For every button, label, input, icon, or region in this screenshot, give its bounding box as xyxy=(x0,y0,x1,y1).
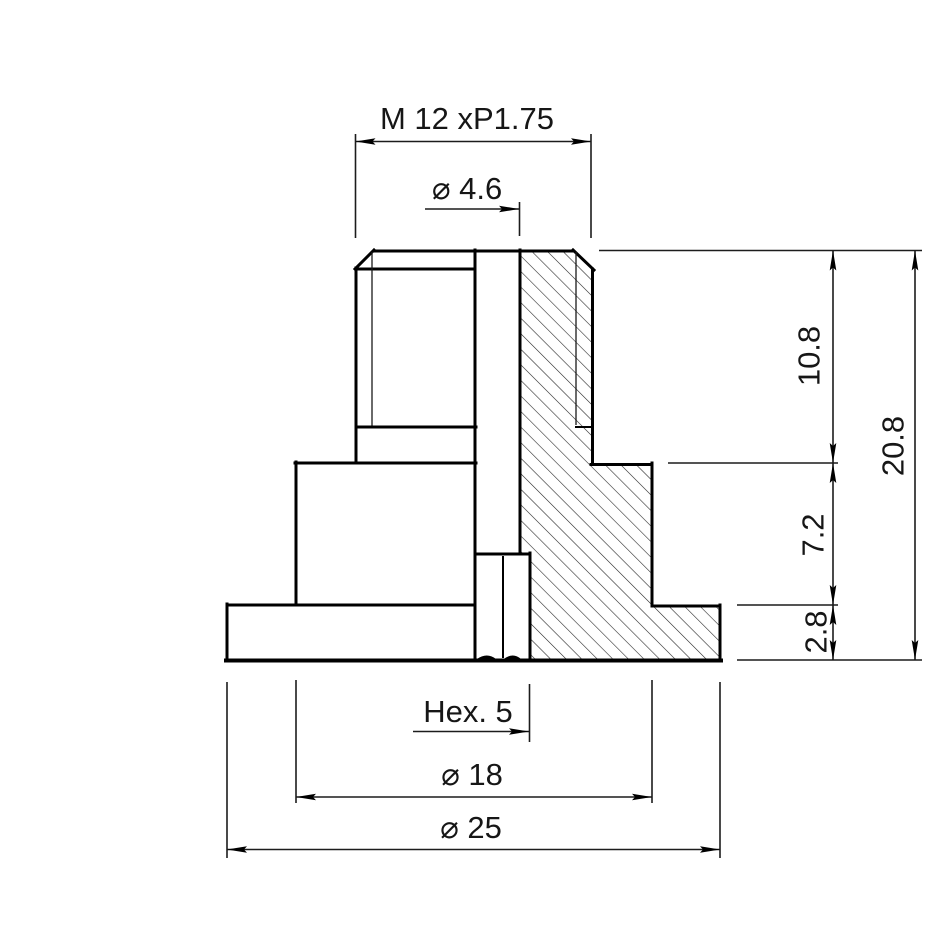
dimension-bore: ⌀ 4.6 xyxy=(425,171,520,236)
technical-drawing: M 12 xP1.75 ⌀ 4.6 10.8 7.2 2.8 20.8 Hex.… xyxy=(0,0,939,939)
boss-diameter-label: ⌀ 18 xyxy=(441,757,503,792)
hex-bottom-fillet-left xyxy=(477,656,496,660)
hex-bottom-fillet-right xyxy=(504,656,521,660)
dimension-diameters: Hex. 5 ⌀ 18 ⌀ 25 xyxy=(227,680,720,858)
total-height-label: 20.8 xyxy=(876,416,911,476)
drawing-svg: M 12 xP1.75 ⌀ 4.6 10.8 7.2 2.8 20.8 Hex.… xyxy=(0,0,939,939)
dimension-thread: M 12 xP1.75 xyxy=(356,101,592,238)
hatched-section-area xyxy=(521,252,720,659)
bore-diameter-label: ⌀ 4.6 xyxy=(432,171,502,206)
flange-height-label: 2.8 xyxy=(799,610,834,653)
upper-height-label: 10.8 xyxy=(792,326,827,386)
left-chamfer-edge xyxy=(355,250,374,269)
thread-spec-label: M 12 xP1.75 xyxy=(380,101,554,136)
flange-diameter-label: ⌀ 25 xyxy=(440,810,502,845)
middle-height-label: 7.2 xyxy=(796,513,831,556)
section-hatch xyxy=(521,252,720,659)
hex-socket-label: Hex. 5 xyxy=(423,694,513,729)
